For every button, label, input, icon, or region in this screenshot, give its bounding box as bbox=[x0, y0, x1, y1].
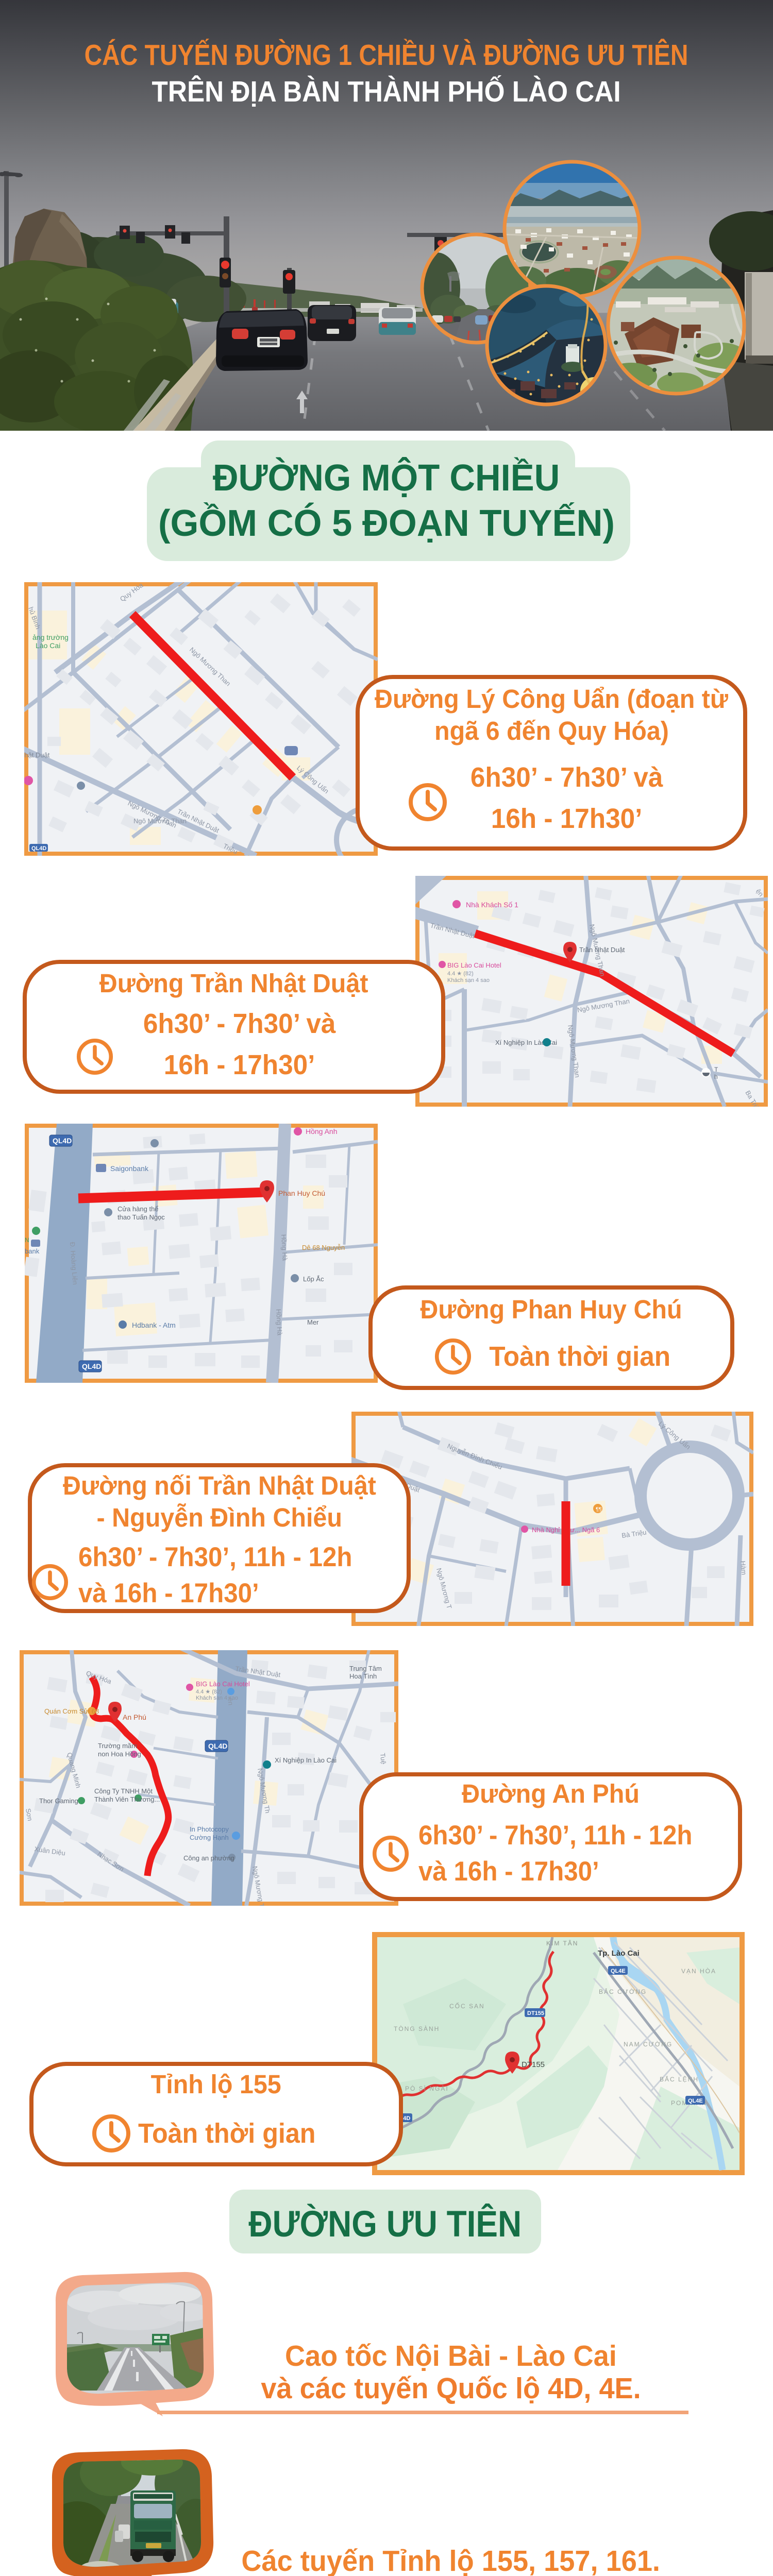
svg-text:Phan Huy Chú: Phan Huy Chú bbox=[278, 1189, 325, 1197]
svg-text:Saigonbank: Saigonbank bbox=[110, 1164, 149, 1173]
svg-text:Quán Cơm Sửi 68: Quán Cơm Sửi 68 bbox=[44, 1707, 99, 1715]
svg-text:QL4D: QL4D bbox=[82, 1362, 101, 1370]
svg-text:Khách sạn 4 sao: Khách sạn 4 sao bbox=[196, 1695, 238, 1701]
svg-text:QL4D: QL4D bbox=[31, 845, 46, 852]
svg-text:Thành Viên Thương...: Thành Viên Thương... bbox=[94, 1795, 160, 1803]
svg-text:Xí Nghiệp In Lào Cai: Xí Nghiệp In Lào Cai bbox=[275, 1756, 337, 1764]
svg-text:CỐC SAN: CỐC SAN bbox=[449, 2002, 485, 2010]
svg-text:In Photocopy: In Photocopy bbox=[190, 1825, 229, 1833]
svg-text:Công Ty TNHH Một: Công Ty TNHH Một bbox=[94, 1787, 153, 1795]
svg-text:Tp. Lào Cai: Tp. Lào Cai bbox=[598, 1949, 640, 1958]
svg-text:Hồng Anh: Hồng Anh bbox=[306, 1127, 338, 1136]
svg-text:Tuệ: Tuệ bbox=[379, 1753, 388, 1765]
svg-text:DT155: DT155 bbox=[522, 2060, 545, 2069]
svg-text:Công an phường: Công an phường bbox=[183, 1854, 234, 1862]
svg-text:¶¶: ¶¶ bbox=[596, 1506, 602, 1513]
svg-text:4.4 ★ (82): 4.4 ★ (82) bbox=[196, 1689, 222, 1695]
svg-text:BIG Lào Cai Hotel: BIG Lào Cai Hotel bbox=[447, 961, 501, 969]
svg-text:Cường Hạnh: Cường Hạnh bbox=[190, 1834, 229, 1841]
svg-text:Hồng Hà: Hồng Hà bbox=[275, 1309, 284, 1336]
svg-text:QL4E: QL4E bbox=[611, 1968, 626, 1974]
svg-text:QL4D: QL4D bbox=[208, 1742, 227, 1750]
svg-text:Mer: Mer bbox=[307, 1318, 319, 1326]
svg-text:PÒ SÌ NGÀI: PÒ SÌ NGÀI bbox=[405, 2084, 449, 2092]
svg-text:Nhà Khách Số 1: Nhà Khách Số 1 bbox=[466, 901, 518, 909]
svg-text:Khách sạn 4 sao: Khách sạn 4 sao bbox=[447, 977, 490, 984]
svg-text:thao Tuấn Ngọc: thao Tuấn Ngọc bbox=[117, 1213, 165, 1221]
svg-text:NAM CƯỜNG: NAM CƯỜNG bbox=[624, 2040, 673, 2048]
svg-text:VẠN HÒA: VẠN HÒA bbox=[681, 1967, 716, 1975]
svg-text:Dê 68 Nguyễn: Dê 68 Nguyễn bbox=[302, 1244, 345, 1251]
svg-text:Lốp Ắc: Lốp Ắc bbox=[303, 1275, 324, 1283]
svg-text:Hdbank - Atm: Hdbank - Atm bbox=[132, 1321, 176, 1329]
svg-text:Lào Cai: Lào Cai bbox=[36, 641, 60, 650]
svg-text:4.4 ★ (82): 4.4 ★ (82) bbox=[447, 971, 474, 977]
svg-text:Thor Gaming: Thor Gaming bbox=[39, 1797, 78, 1805]
svg-text:Hàm: Hàm bbox=[739, 1561, 748, 1575]
svg-text:BẮC CƯỜNG: BẮC CƯỜNG bbox=[599, 1988, 647, 1995]
svg-text:ảng trường: ảng trường bbox=[32, 633, 69, 641]
svg-text:Cửa hàng thể: Cửa hàng thể bbox=[117, 1205, 159, 1213]
svg-text:DT155: DT155 bbox=[527, 2010, 544, 2016]
svg-text:Hồng Hà: Hồng Hà bbox=[280, 1234, 289, 1261]
svg-text:KIM TÂN: KIM TÂN bbox=[546, 1939, 578, 1947]
svg-text:Trường mầm: Trường mầm bbox=[98, 1742, 137, 1750]
svg-text:T: T bbox=[714, 1066, 718, 1073]
svg-text:Hoa Tình: Hoa Tình bbox=[349, 1672, 377, 1680]
svg-text:bank: bank bbox=[25, 1247, 40, 1255]
svg-text:BIG Lào Cai Hotel: BIG Lào Cai Hotel bbox=[196, 1680, 250, 1688]
svg-text:non Hoa Hồng: non Hoa Hồng bbox=[98, 1750, 141, 1758]
svg-text:BẮC LỆNH: BẮC LỆNH bbox=[660, 2075, 699, 2083]
svg-text:N: N bbox=[25, 1236, 29, 1244]
svg-text:QL4E: QL4E bbox=[688, 2098, 703, 2104]
svg-text:Trung Tâm: Trung Tâm bbox=[349, 1665, 382, 1672]
svg-text:QL4D: QL4D bbox=[53, 1137, 72, 1145]
svg-text:An Phú: An Phú bbox=[123, 1713, 146, 1721]
svg-text:n Nhật Duật: n Nhật Duật bbox=[24, 751, 50, 759]
svg-text:h: h bbox=[714, 1073, 718, 1080]
svg-text:Ngô Mương Than: Ngô Mương Than bbox=[133, 817, 187, 825]
svg-text:TÒNG SÀNH: TÒNG SÀNH bbox=[394, 2025, 440, 2032]
